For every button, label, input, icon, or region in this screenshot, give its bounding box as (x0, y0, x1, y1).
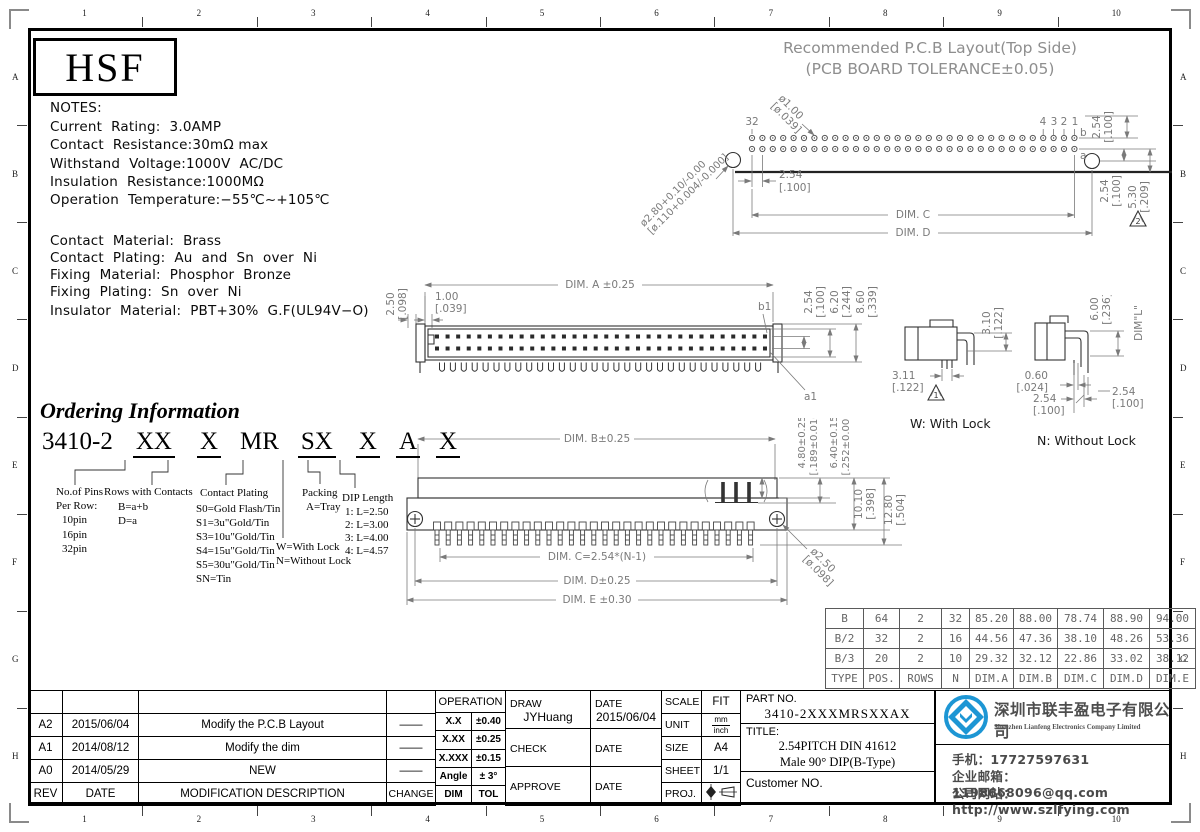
ordering-label: S4=15u"Gold/Tin (196, 545, 275, 557)
lock-bump (930, 320, 953, 327)
w-lock-caption: W: With Lock (910, 416, 991, 431)
keying-notch (428, 335, 434, 344)
frame-grid-tick (17, 319, 27, 320)
material-line: Insulator Material: PBT+30% G.F(UL94V−O) (50, 303, 369, 319)
table-row: DRAW JYHuang DATE 2015/06/04 (506, 691, 662, 729)
frame-grid-tick (371, 806, 372, 816)
frame-grid-label: B (12, 169, 18, 179)
pin-number-label: 32 (745, 116, 758, 128)
front-view-drawing: 2.50 [.098] 1.00 [.039] DIM. A ±0.25 b1 … (380, 262, 890, 422)
table-row: PROJ. (662, 783, 741, 806)
dim-label: [.098] (397, 288, 409, 320)
company-name-en: Shenzhen Lianfeng Electronics Company Li… (994, 724, 1141, 731)
proj-label: PROJ. (662, 788, 701, 800)
size-value: A4 (702, 742, 740, 754)
ordering-label: S5=30u"Gold/Tin (196, 559, 275, 571)
sheet-value: 1/1 (702, 765, 740, 777)
material-line: Fixing Plating: Sn over Ni (50, 284, 242, 300)
table-row: CHECK DATE (506, 729, 662, 767)
break-out-pins (705, 480, 767, 503)
frame-grid-label: E (12, 460, 18, 470)
frame-grid-label: H (12, 751, 19, 761)
table-row: SHEET 1/1 (662, 760, 741, 783)
ordering-label: 4: L=4.57 (345, 545, 388, 557)
frame-grid-tick (371, 17, 372, 27)
svg-text:2: 2 (1135, 217, 1140, 226)
part-no-value: 3410-2XXXMRSXXAX (741, 706, 934, 722)
ordering-label: N=Without Lock (276, 555, 351, 567)
dim-label: [.236] (1101, 295, 1113, 325)
frame-grid-tick (1173, 417, 1183, 418)
dim-label: 2.54 (1091, 115, 1103, 139)
dim-label: [.504] (895, 494, 907, 526)
corner-mark (9, 9, 29, 29)
customer-label: Customer NO. (746, 776, 823, 790)
lock-prongs (942, 360, 952, 369)
table-row: UNIT mm inch (662, 714, 741, 737)
row-a-label: a (1080, 150, 1086, 162)
projection-symbol-icon (704, 784, 738, 800)
pcb-title-line2: (PCB BOARD TOLERANCE±0.05) (690, 59, 1170, 80)
dim-label: [.189±0.010] (809, 418, 820, 476)
draw-label: DRAW (506, 696, 590, 710)
material-line: Contact Plating: Au and Sn over Ni (50, 250, 317, 266)
pcb-pin-row-b (749, 135, 1077, 140)
pin-row-a (435, 347, 767, 351)
notes-title: NOTES: (50, 100, 102, 116)
note-line: Operation Temperature:−55℃~+105℃ (50, 192, 330, 208)
ordering-label: S3=10u"Gold/Tin (196, 531, 275, 543)
n-lock-caption: N: Without Lock (1037, 433, 1137, 448)
tolerance-table: OPERATION X.X±0.40 X.XX±0.25 X.XXX±0.15 … (435, 690, 506, 805)
date-label: DATE (591, 696, 661, 710)
table-row: A02014/05/29 NEW—— (29, 760, 436, 783)
dim-label: [.398] (865, 488, 877, 520)
table-row (29, 691, 436, 714)
dim-label: 5.30 (1127, 185, 1139, 208)
ordering-label: 10pin (62, 514, 87, 526)
frame-grid-label: A (1180, 72, 1187, 82)
dim-label: 6.20 (829, 290, 841, 313)
dim-label: [.100] (1103, 111, 1115, 143)
dim-label: [.339] (867, 286, 879, 318)
ordering-label: DIP Length (342, 492, 393, 504)
frame-grid-tick (943, 17, 944, 27)
dim-label: [.209] (1139, 181, 1151, 213)
dim-label: [.100] (815, 286, 827, 318)
dim-label: 2.50 (385, 292, 397, 315)
part-no-label: PART NO. (746, 693, 797, 705)
ordering-label: S0=Gold Flash/Tin (196, 503, 280, 515)
table-row: SIZE A4 (662, 737, 741, 760)
frame-grid-tick (142, 806, 143, 816)
svg-text:1: 1 (933, 391, 938, 400)
frame-grid-label: 5 (540, 814, 545, 824)
hsf-logo-text: HSF (65, 44, 144, 91)
ordering-label: D=a (118, 515, 137, 527)
unit-label: UNIT (662, 719, 701, 731)
dim-label: [.122] (892, 382, 924, 394)
frame-grid-label: A (12, 72, 19, 82)
table-header-row: TYPEPOS.ROWS NDIM.ADIM.B DIM.CDIM.DDIM.E (826, 669, 1196, 689)
table-row: SCALE FIT (662, 691, 741, 714)
pcb-layout-title: Recommended P.C.B Layout(Top Side) (PCB … (690, 38, 1170, 80)
ordering-label: B=a+b (118, 501, 148, 513)
revision-table: A22015/06/04 Modify the P.C.B Layout—— A… (28, 690, 436, 806)
table-row: OPERATION (436, 691, 506, 713)
dim-label: 10.10 (853, 489, 865, 519)
frame-grid-tick (486, 17, 487, 27)
table-row: Angle± 3° (436, 767, 506, 785)
dim-label: [.039] (435, 303, 467, 315)
frame-grid-label: 9 (997, 8, 1002, 18)
frame-grid-tick (257, 17, 258, 27)
dim-label: ø2.80+0.10/-0.00 (638, 159, 708, 229)
frame-grid-label: 2 (197, 814, 202, 824)
frame-grid-tick (1173, 319, 1183, 320)
size-label: SIZE (662, 742, 701, 754)
company-block: 深圳市联丰盈电子有限公司 Shenzhen Lianfeng Electroni… (935, 690, 1172, 805)
dimension-spec-table: B642 3285.2088.00 78.7488.9094.00 B/2322… (825, 608, 1196, 689)
ordering-label: SN=Tin (196, 573, 231, 585)
sheet-label: SHEET (662, 765, 701, 777)
note-line: Insulation Resistance:1000MΩ (50, 174, 264, 190)
ordering-label: W=With Lock (276, 541, 340, 553)
draw-date: 2015/06/04 (591, 710, 661, 724)
frame-grid-label: 7 (769, 814, 774, 824)
date-label: DATE (591, 779, 661, 793)
pin-a1-label: a1 (804, 391, 817, 403)
dim-label: 8.60 (855, 290, 867, 313)
check-label: CHECK (506, 741, 590, 755)
ordering-label: Packing (302, 487, 337, 499)
dim-label: DIM"L" (1133, 305, 1145, 341)
revision-triangle-1: 1 (928, 385, 944, 400)
dim-label: [.100] (1033, 405, 1065, 417)
corner-mark (9, 803, 29, 823)
mount-hole-right (770, 512, 785, 527)
frame-grid-tick (714, 806, 715, 816)
ordering-label: A=Tray (306, 501, 341, 513)
frame-grid-label: C (1180, 266, 1186, 276)
dim-label: DIM. A ±0.25 (565, 279, 635, 291)
pcb-mount-hole-right (1085, 154, 1100, 169)
dim-label: 3.11 (892, 370, 915, 382)
table-row: APPROVE DATE (506, 767, 662, 806)
table-row: B/3202 1029.3232.12 22.8633.0238.12 (826, 649, 1196, 669)
frame-grid-tick (829, 17, 830, 27)
title-line2: Male 90° DIP(B-Type) (741, 755, 934, 770)
dim-label: 2.54 (779, 169, 803, 181)
customer-row: Customer NO. (741, 772, 934, 804)
dim-label: 4.80±0.25 (797, 418, 808, 468)
company-website: 公司网站：http://www.szlfying.com (952, 783, 1171, 817)
table-row: DIMTOL (436, 785, 506, 804)
frame-grid-label: 4 (425, 814, 430, 824)
table-footer-row: REVDATE MODIFICATION DESCRIPTIONCHANGE (29, 783, 436, 806)
dim-label: [.100] (1111, 175, 1123, 207)
corner-mark (1171, 9, 1191, 29)
pin-b1-label: b1 (758, 301, 771, 313)
company-header: 深圳市联丰盈电子有限公司 Shenzhen Lianfeng Electroni… (936, 691, 1171, 745)
row-b-label: b (1080, 127, 1087, 139)
pcb-layout-drawing: 32 4 3 2 1 b a ø1.00 [ø.039] ø2.80+0.10/… (630, 85, 1172, 245)
frame-grid-tick (17, 708, 27, 709)
frame-grid-tick (17, 417, 27, 418)
unit-value: mm inch (702, 716, 740, 735)
dim-label: 6.00 (1089, 297, 1101, 320)
frame-grid-label: 3 (311, 8, 316, 18)
dim-label: 2.54 (803, 290, 815, 314)
frame-grid-label: 1 (82, 814, 87, 824)
frame-grid-tick (1173, 708, 1183, 709)
frame-grid-label: 2 (197, 8, 202, 18)
frame-grid-tick (600, 806, 601, 816)
part-no-row: PART NO. 3410-2XXXMRSXXAX (741, 691, 934, 724)
pin-number-label: 1 (1072, 116, 1079, 128)
dim-label: DIM. C=2.54*(N-1) (548, 551, 646, 563)
ordering-label: S1=3u"Gold/Tin (196, 517, 269, 529)
bottom-pin-legs (434, 522, 755, 545)
ordering-label: Contact Plating (200, 487, 268, 499)
dim-label: DIM. C (896, 209, 930, 221)
frame-grid-label: 6 (654, 8, 659, 18)
frame-grid-tick (714, 17, 715, 27)
dim-label: DIM. E ±0.30 (562, 594, 631, 606)
pin-number-label: 3 (1051, 116, 1058, 128)
ordering-label: No.of Pins (56, 486, 103, 498)
dim-label: [.122] (993, 307, 1005, 339)
table-row: B642 3285.2088.00 78.7488.9094.00 (826, 609, 1196, 629)
frame-grid-label: E (1180, 460, 1186, 470)
dim-label: [ø.110+0.004/-0.000] (646, 152, 731, 237)
frame-grid-tick (17, 514, 27, 515)
frame-grid-tick (257, 806, 258, 816)
dim-label: [.100] (1112, 398, 1144, 410)
frame-grid-label: 8 (883, 8, 888, 18)
dim-label: [.244] (841, 286, 853, 318)
scale-value: FIT (702, 696, 740, 708)
company-name-cn: 深圳市联丰盈电子有限公司 (994, 698, 1171, 742)
frame-grid-label: 4 (425, 8, 430, 18)
table-row: X.XX±0.25 (436, 731, 506, 749)
dim-label: 2.54 (1099, 179, 1111, 203)
table-row: A12014/08/12 Modify the dim—— (29, 737, 436, 760)
pin-number-label: 2 (1061, 116, 1068, 128)
hsf-logo-box: HSF (33, 38, 177, 96)
note-line: Withstand Voltage:1000V AC/DC (50, 156, 283, 172)
frame-grid-label: H (1180, 751, 1187, 761)
material-line: Fixing Material: Phosphor Bronze (50, 267, 291, 283)
title-row: TITLE: 2.54PITCH DIN 41612 Male 90° DIP(… (741, 724, 934, 772)
pcb-title-line1: Recommended P.C.B Layout(Top Side) (690, 38, 1170, 59)
dim-label: 3.10 (981, 311, 993, 334)
dim-label: [.252±0.006] (841, 418, 852, 476)
ordering-heading: Ordering Information (40, 398, 240, 424)
company-logo-icon (944, 695, 988, 739)
frame-grid-tick (829, 806, 830, 816)
frame-grid-label: 6 (654, 814, 659, 824)
dim-label: 2.54 (1112, 386, 1136, 398)
frame-grid-tick (17, 222, 27, 223)
dim-label: [.100] (779, 182, 811, 194)
n-lock-body (1035, 323, 1065, 360)
ordering-label: Rows with Contacts (104, 486, 193, 498)
frame-grid-tick (486, 806, 487, 816)
dim-label: DIM. D±0.25 (563, 575, 630, 587)
ordering-label: 1: L=2.50 (345, 506, 388, 518)
side-views-drawing: 3.10 [.122] 3.11 [.122] 1 W: With Lock 6… (890, 295, 1172, 460)
note-line: Current Rating: 3.0AMP (50, 119, 221, 135)
frame-grid-label: G (12, 654, 19, 664)
frame-grid-label: 10 (1112, 8, 1121, 18)
dim-label: 1.00 (435, 291, 458, 303)
frame-grid-tick (17, 611, 27, 612)
frame-grid-label: C (12, 266, 18, 276)
dim-label: 12.80 (883, 495, 895, 525)
frame-grid-label: D (1180, 363, 1187, 373)
frame-grid-label: 3 (311, 814, 316, 824)
sign-block: DRAW JYHuang DATE 2015/06/04 CHECK DATE … (505, 690, 662, 806)
ordering-code-seg: A (396, 428, 420, 458)
ordering-label: 3: L=4.00 (345, 532, 388, 544)
frame-grid-tick (943, 806, 944, 816)
pin-legs (440, 363, 761, 372)
frame-grid-label: 8 (883, 814, 888, 824)
frame-grid-label: 5 (540, 8, 545, 18)
dim-label: DIM. B±0.25 (564, 433, 630, 445)
frame-grid-tick (600, 17, 601, 27)
w-lock-body (905, 327, 957, 360)
dim-label: 0.60 (1025, 370, 1048, 382)
table-row: X.XXX±0.15 (436, 749, 506, 767)
corner-mark (1171, 803, 1191, 823)
scale-block: SCALE FIT UNIT mm inch SIZE A4 SHEET 1/1… (661, 690, 741, 806)
scale-label: SCALE (662, 696, 701, 708)
pin-number-label: 4 (1040, 116, 1047, 128)
ordering-code-seg: X (436, 428, 460, 458)
frame-grid-label: F (1180, 557, 1185, 567)
ordering-label: 16pin (62, 529, 87, 541)
ordering-label: 2: L=3.00 (345, 519, 388, 531)
frame-grid-tick (1173, 125, 1183, 126)
frame-grid-label: 7 (769, 8, 774, 18)
ordering-label: 32pin (62, 543, 87, 555)
dim-label: DIM. D (895, 227, 930, 239)
note-line: Contact Resistance:30mΩ max (50, 137, 268, 153)
draw-name: JYHuang (506, 710, 590, 724)
frame-grid-label: F (12, 557, 17, 567)
frame-grid-tick (17, 125, 27, 126)
date-label: DATE (591, 741, 661, 755)
dim-label: 2.54 (1033, 393, 1057, 405)
frame-grid-label: B (1180, 169, 1186, 179)
material-line: Contact Material: Brass (50, 233, 221, 249)
table-row: A22015/06/04 Modify the P.C.B Layout—— (29, 714, 436, 737)
table-row: X.X±0.40 (436, 713, 506, 731)
table-row: B/2322 1644.5647.36 38.1048.2653.36 (826, 629, 1196, 649)
frame-grid-tick (1173, 514, 1183, 515)
connector-body (425, 326, 773, 360)
mount-hole-left (408, 512, 423, 527)
title-line1: 2.54PITCH DIN 41612 (741, 739, 934, 754)
ordering-label: Per Row: (56, 500, 97, 512)
drawing-sheet: 1122334455667788991010AABBCCDDEEFFGGHH H… (0, 0, 1200, 832)
frame-grid-label: 1 (82, 8, 87, 18)
frame-grid-tick (142, 17, 143, 27)
frame-grid-tick (1058, 17, 1059, 27)
frame-grid-tick (1173, 222, 1183, 223)
end-cap-left (416, 324, 425, 362)
dim-label: 6.40±0.15 (829, 418, 840, 468)
pin-row-b (435, 335, 767, 339)
pcb-pin-row-a (749, 146, 1077, 151)
frame-grid-label: D (12, 363, 19, 373)
title-label: TITLE: (746, 726, 779, 738)
part-block: PART NO. 3410-2XXXMRSXXAX TITLE: 2.54PIT… (740, 690, 935, 805)
approve-label: APPROVE (506, 779, 590, 793)
